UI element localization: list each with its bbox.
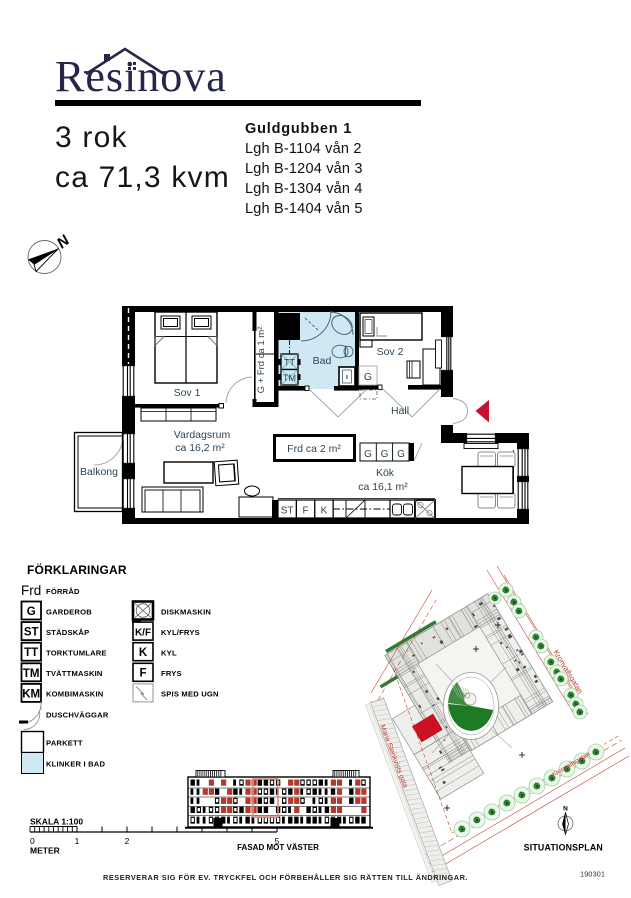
svg-text:G: G: [364, 371, 372, 383]
svg-text:K/F: K/F: [135, 627, 151, 638]
svg-text:Frd: Frd: [21, 583, 41, 598]
svg-text:TT: TT: [24, 647, 38, 659]
svg-text:DUSCHVÄGGAR: DUSCHVÄGGAR: [46, 710, 109, 719]
svg-text:KYL: KYL: [161, 649, 177, 658]
svg-text:F: F: [303, 506, 309, 517]
svg-text:KM: KM: [22, 688, 40, 700]
svg-text:G: G: [397, 449, 405, 460]
svg-text:TM: TM: [23, 668, 40, 680]
svg-text:Kök: Kök: [376, 467, 395, 479]
svg-text:190301: 190301: [580, 870, 605, 879]
svg-text:FRYS: FRYS: [161, 669, 182, 678]
svg-text:DISKMASKIN: DISKMASKIN: [161, 607, 211, 616]
svg-text:ca 16,2 m²: ca 16,2 m²: [175, 442, 225, 454]
svg-text:Sov 2: Sov 2: [377, 346, 404, 358]
svg-text:PARKETT: PARKETT: [46, 739, 83, 748]
svg-text:KLINKER I BAD: KLINKER I BAD: [46, 760, 105, 769]
svg-text:STÄDSKÅP: STÄDSKÅP: [46, 628, 89, 637]
svg-text:F: F: [139, 668, 146, 680]
svg-text:Sov 1: Sov 1: [174, 387, 201, 399]
svg-text:ca 16,1 m²: ca 16,1 m²: [358, 481, 408, 493]
svg-text:2: 2: [125, 836, 130, 846]
svg-text:GARDEROB: GARDEROB: [46, 607, 92, 616]
svg-text:0: 0: [30, 836, 35, 846]
svg-text:Hall: Hall: [391, 405, 409, 417]
svg-text:TORKTUMLARE: TORKTUMLARE: [46, 649, 107, 658]
svg-text:SITUATIONSPLAN: SITUATIONSPLAN: [524, 843, 603, 853]
svg-text:G: G: [364, 449, 372, 460]
svg-text:Vardagsrum: Vardagsrum: [174, 429, 231, 441]
svg-text:G + Frd ca 1 m²: G + Frd ca 1 m²: [256, 327, 267, 394]
svg-text:G: G: [381, 449, 389, 460]
svg-text:K: K: [139, 647, 148, 659]
svg-text:K: K: [321, 506, 328, 517]
svg-text:N: N: [563, 806, 568, 813]
svg-text:SKALA 1:100: SKALA 1:100: [30, 817, 83, 827]
svg-text:KYL/FRYS: KYL/FRYS: [161, 628, 200, 637]
svg-text:Bad: Bad: [313, 355, 332, 367]
svg-text:FASAD MOT VÄSTER: FASAD MOT VÄSTER: [237, 843, 319, 852]
svg-text:TM: TM: [283, 373, 296, 383]
svg-text:Frd ca 2 m²: Frd ca 2 m²: [287, 443, 341, 455]
svg-text:FÖRRÅD: FÖRRÅD: [46, 587, 80, 596]
svg-text:ST: ST: [24, 627, 39, 639]
svg-text:KOMBIMASKIN: KOMBIMASKIN: [46, 690, 103, 699]
svg-text:Balkong: Balkong: [80, 466, 118, 478]
svg-text:SPIS MED UGN: SPIS MED UGN: [161, 690, 219, 699]
svg-text:TVÄTTMASKIN: TVÄTTMASKIN: [46, 669, 103, 678]
svg-text:G: G: [27, 606, 36, 618]
svg-text:1: 1: [75, 836, 80, 846]
svg-text:FÖRKLARINGAR: FÖRKLARINGAR: [27, 562, 127, 577]
svg-text:METER: METER: [30, 846, 60, 856]
svg-text:N: N: [54, 231, 74, 252]
svg-text:TT: TT: [284, 358, 295, 368]
svg-text:ST: ST: [281, 506, 294, 517]
